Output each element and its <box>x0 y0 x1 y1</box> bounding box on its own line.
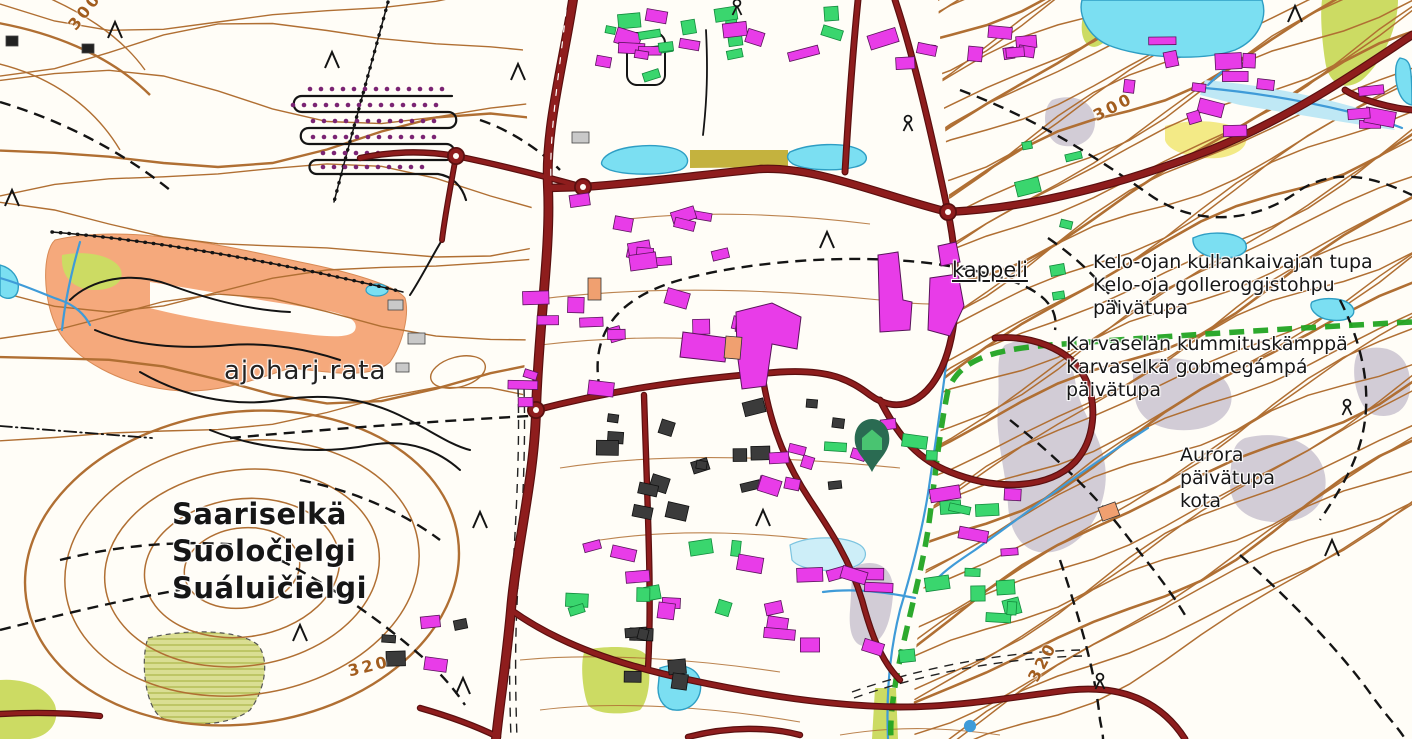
map-canvas[interactable]: Saariselkä Suoločielgi Suáluičielgi ajoh… <box>0 0 1412 739</box>
aurora-hut-label: Aurora päivätupa kota <box>1180 444 1275 513</box>
hut-person-icon <box>904 116 913 131</box>
location-marker-pin[interactable] <box>849 416 895 474</box>
shelter-icon <box>756 510 770 526</box>
shelter-icon <box>1325 540 1339 556</box>
place-name-fi: Saariselkä <box>172 496 367 533</box>
kelo-oja-hut-label: Kelo-ojan kullankaivajan tupa Kelo-oja g… <box>1093 251 1373 320</box>
shelter-icon <box>325 52 339 68</box>
shelter-icon <box>820 232 834 248</box>
shelter-icon <box>293 625 307 641</box>
chapel-label: kappeli <box>952 258 1028 282</box>
karvaselka-hut-label: Karvaselän kummituskämppä Karvaselkä gob… <box>1066 333 1348 402</box>
shelter-icon <box>473 512 487 528</box>
place-name-smn: Suáluičielgi <box>172 570 367 607</box>
driving-track-label: ajoharj.rata <box>224 356 386 386</box>
place-name-label: Saariselkä Suoločielgi Suáluičielgi <box>172 496 367 607</box>
place-name-se: Suoločielgi <box>172 533 367 570</box>
shelter-icon <box>511 64 525 80</box>
shelter-icon <box>456 678 470 694</box>
